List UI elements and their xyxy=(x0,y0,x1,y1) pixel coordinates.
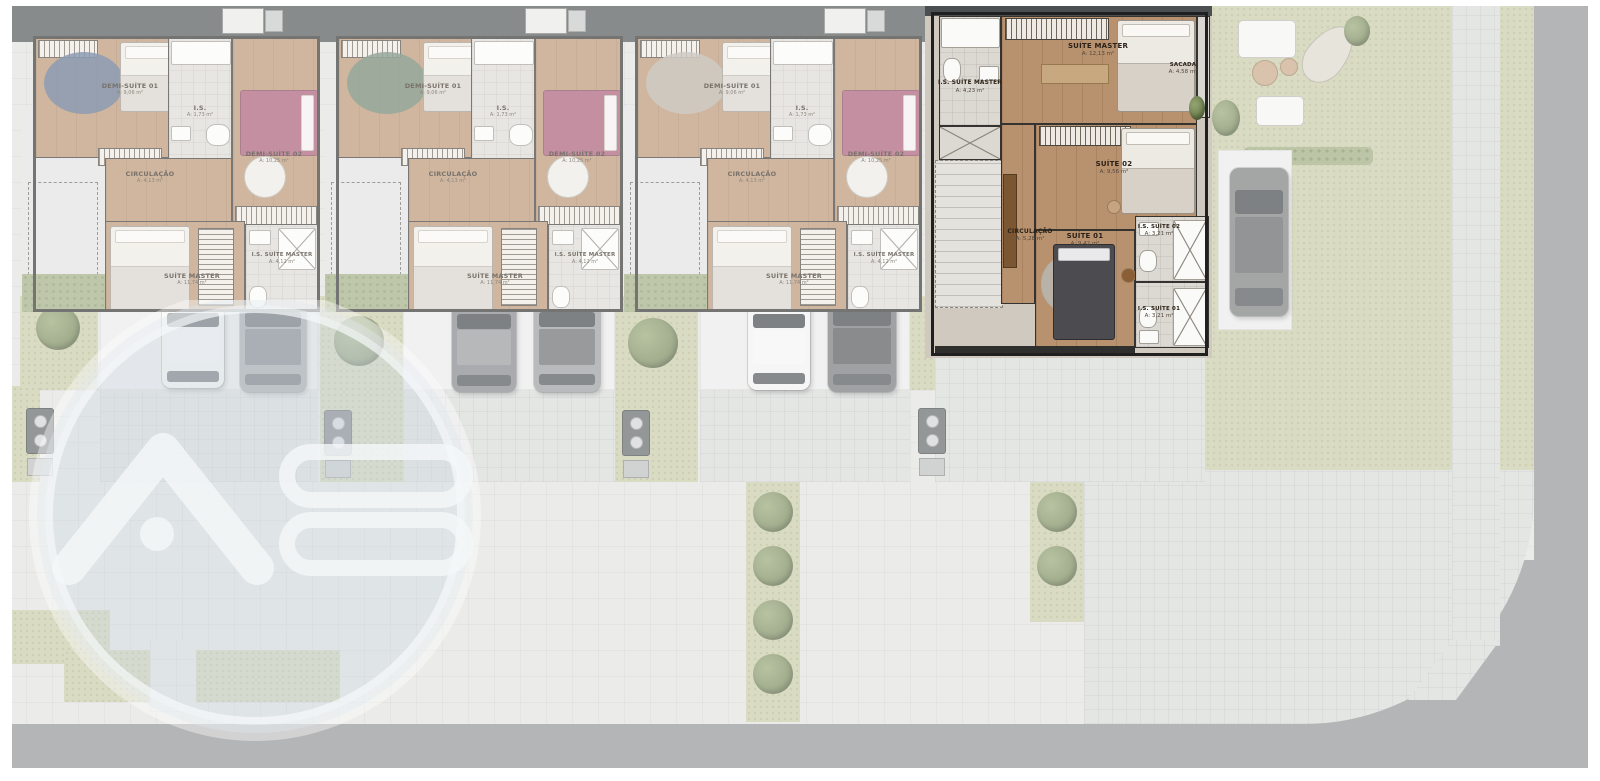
unit-1-floorplan: DEMI-SUÍTE 01A: 9,06 m² I.S.A: 1,73 m² D… xyxy=(20,6,320,312)
round-table xyxy=(1252,60,1278,86)
frame-top xyxy=(0,0,1600,6)
site-plan-canvas: { "watermark": { "letters": "AB" }, "uni… xyxy=(0,0,1600,781)
sink xyxy=(1139,222,1159,236)
roof-equipment xyxy=(824,8,866,34)
unit-2-floorplan: DEMI-SUÍTE 01A: 9,06 m² I.S.A: 1,73 m² D… xyxy=(323,6,623,312)
utility-meter-2 xyxy=(324,410,352,456)
roof-equipment xyxy=(265,10,283,32)
stool xyxy=(1121,268,1136,283)
bed-pillow xyxy=(115,230,185,243)
apron-1 xyxy=(100,390,318,482)
wardrobe xyxy=(1039,126,1131,146)
unit-4-floorplan-highlighted: I.S. SUÍTE MASTERA: 4,23 m² SUÍTE MASTER… xyxy=(925,6,1212,358)
bush xyxy=(753,654,793,694)
console-table xyxy=(1003,174,1017,268)
bush xyxy=(1212,100,1240,136)
utility-panel-4 xyxy=(919,458,945,476)
roof-edge xyxy=(925,6,1212,16)
bush xyxy=(1344,16,1370,46)
wardrobe xyxy=(501,228,537,306)
frame-right xyxy=(1588,0,1600,781)
unit-3-floorplan: DEMI-SUÍTE 01A: 9,06 m² I.S.A: 1,73 m² D… xyxy=(622,6,922,312)
utility-meter-3 xyxy=(622,410,650,456)
shower xyxy=(1173,220,1207,280)
sink xyxy=(851,230,873,245)
bush xyxy=(1037,492,1077,532)
round-rug xyxy=(547,156,589,198)
car-suv-gray xyxy=(534,298,600,392)
apron-2 xyxy=(403,390,615,482)
wardrobe xyxy=(1005,18,1109,40)
bush xyxy=(753,546,793,586)
shower-box xyxy=(939,126,1001,160)
bed-blanket xyxy=(1118,63,1194,111)
apron-3 xyxy=(700,390,910,482)
shower xyxy=(1173,288,1207,346)
shower xyxy=(880,228,918,270)
bed-pillow xyxy=(604,95,617,151)
sink xyxy=(1139,330,1159,344)
bed-blanket xyxy=(1122,168,1194,213)
garden-patch xyxy=(22,274,105,312)
room-circulacao xyxy=(408,158,535,228)
bed-pillow xyxy=(1058,248,1110,261)
shower xyxy=(941,18,1000,48)
car-white xyxy=(162,300,224,388)
bush xyxy=(753,600,793,640)
car-dark-gray xyxy=(452,300,516,392)
sink xyxy=(171,126,191,141)
round-table xyxy=(1280,58,1298,76)
lawn-band-bottom-left xyxy=(64,650,340,702)
toilet xyxy=(851,286,869,308)
toilet xyxy=(509,124,533,146)
bed xyxy=(1121,128,1195,214)
shower xyxy=(278,228,316,270)
utility-panel-2 xyxy=(325,460,351,478)
toilet xyxy=(943,58,961,82)
bed xyxy=(712,226,792,312)
sink xyxy=(249,230,271,245)
car-sedan-dark xyxy=(1230,168,1288,316)
bed xyxy=(413,226,493,312)
garden-patch xyxy=(325,274,408,312)
toilet xyxy=(206,124,230,146)
area-rug xyxy=(44,52,124,114)
bed-pillow xyxy=(418,230,488,243)
bed-blanket xyxy=(713,266,791,311)
side-table xyxy=(1107,200,1121,214)
frame-bottom xyxy=(0,768,1600,781)
utility-meter-4 xyxy=(918,408,946,454)
toilet xyxy=(552,286,570,308)
utility-meter-1 xyxy=(26,408,54,454)
car-suv-gray xyxy=(240,298,306,392)
toilet xyxy=(808,124,832,146)
bed xyxy=(1053,244,1115,340)
bottom-wall xyxy=(935,346,1135,353)
toilet xyxy=(1139,250,1157,272)
sink xyxy=(773,126,793,141)
round-rug xyxy=(846,156,888,198)
bed xyxy=(1117,20,1195,112)
sink xyxy=(552,230,574,245)
bathtub xyxy=(171,41,231,65)
path-crossing xyxy=(150,640,196,712)
bed-pillow xyxy=(1122,24,1190,37)
shower xyxy=(581,228,619,270)
utility-panel-3 xyxy=(623,460,649,478)
toilet xyxy=(1139,306,1157,328)
bed-blanket xyxy=(111,266,189,311)
sink xyxy=(979,66,999,81)
garden-patch xyxy=(624,274,707,312)
area-rug xyxy=(646,52,726,114)
frame-left xyxy=(0,0,12,781)
bed xyxy=(543,90,621,156)
bed-pillow xyxy=(1126,132,1190,145)
bed-pillow xyxy=(903,95,916,151)
sink xyxy=(474,126,494,141)
balcony-plant xyxy=(1189,96,1205,120)
toilet xyxy=(249,286,267,308)
round-rug xyxy=(244,156,286,198)
apron-4 xyxy=(935,358,1205,482)
bush xyxy=(1037,546,1077,586)
bush xyxy=(753,492,793,532)
area-rug xyxy=(347,52,427,114)
bed xyxy=(240,90,318,156)
bed-pillow xyxy=(301,95,314,151)
bench xyxy=(1041,64,1109,84)
roof-equipment xyxy=(222,8,264,34)
tree xyxy=(36,306,80,350)
staircase xyxy=(935,160,1003,308)
room-circulacao xyxy=(105,158,232,228)
wardrobe xyxy=(800,228,836,306)
bed xyxy=(842,90,920,156)
sun-lounger xyxy=(1256,96,1304,126)
tree xyxy=(628,318,678,368)
wardrobe xyxy=(198,228,234,306)
room-circulacao xyxy=(707,158,834,228)
utility-panel-1 xyxy=(27,458,53,476)
tree xyxy=(334,316,384,366)
sun-lounger xyxy=(1238,20,1296,58)
bed xyxy=(110,226,190,312)
bathtub xyxy=(773,41,833,65)
bathtub xyxy=(474,41,534,65)
bed-blanket xyxy=(414,266,492,311)
roof-equipment xyxy=(867,10,885,32)
roof-equipment xyxy=(568,10,586,32)
car-white xyxy=(748,300,810,390)
footpath xyxy=(1452,6,1500,646)
bed-pillow xyxy=(717,230,787,243)
roof-equipment xyxy=(525,8,567,34)
